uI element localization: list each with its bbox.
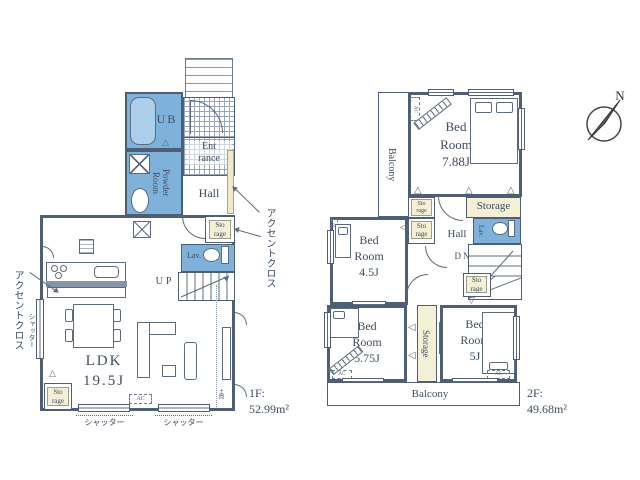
window <box>518 108 525 150</box>
fold-door-icon: △ <box>465 186 473 196</box>
casement-door-arc <box>234 384 247 397</box>
toilet-tank-1f <box>221 246 229 264</box>
hall-door-arc <box>425 246 447 268</box>
ub-label: UB <box>152 112 182 127</box>
pillow <box>475 102 492 113</box>
floor-partition-line <box>216 285 217 407</box>
fold-door-icon: △ <box>162 139 169 148</box>
toilet-tank-2f <box>508 220 515 237</box>
hall-2f-label: Hall <box>437 228 477 240</box>
accent-cloth-left-label: アクセントクロス <box>10 260 25 360</box>
fold-door-icon: ◁ <box>400 223 408 233</box>
chair <box>65 309 73 322</box>
sofa <box>162 365 176 377</box>
shutter-rail <box>76 415 133 416</box>
stairs-up-treads <box>179 273 234 300</box>
chair <box>113 329 121 342</box>
fold-door-icon: △ <box>414 186 422 196</box>
stove-burner <box>60 265 67 272</box>
window <box>324 312 331 348</box>
accent-cloth-right-label: アクセントクロス <box>262 198 277 298</box>
storage-small-1-label: Sto rage <box>411 199 432 216</box>
window <box>428 89 454 96</box>
floor2-label: 2F: <box>527 386 567 402</box>
fold-door-icon: ◁ <box>408 351 416 361</box>
window <box>513 316 520 360</box>
shutter-left-label: シャッター <box>27 298 37 362</box>
floorplan-canvas: Ent rance UB △ Powder Room Hall Sto rage… <box>0 0 640 480</box>
refrigerator <box>133 221 151 238</box>
kitchen-cabinet <box>79 239 94 254</box>
tv-board <box>222 327 231 380</box>
fold-door-icon: ◁ <box>408 323 416 333</box>
storage-mid-label: Sto rage <box>209 220 231 239</box>
storage-small-3-label: Sto rage <box>466 276 487 293</box>
stairs-up <box>178 272 235 301</box>
front-door-leaf <box>190 100 191 134</box>
window <box>78 404 130 412</box>
pillow <box>333 311 345 319</box>
chair <box>65 329 73 342</box>
casement-door-arc <box>234 312 247 325</box>
floor2-area: 2F: 49.68m² <box>527 386 567 417</box>
washing-machine <box>129 154 150 174</box>
entrance-steps <box>185 58 233 98</box>
kitchen-sink <box>94 266 119 278</box>
floor1-area: 1F: 52.99m² <box>249 386 289 417</box>
entrance-label: Ent rance <box>186 141 232 165</box>
callout-line <box>236 229 261 237</box>
balcony-bottom-label: Balcony <box>397 388 463 400</box>
shutter-label: シャッター <box>155 417 212 428</box>
compass: N <box>578 88 634 148</box>
window <box>468 89 514 96</box>
balcony-left-label: Balcony <box>386 128 397 202</box>
pillow <box>338 227 348 235</box>
window <box>36 299 44 359</box>
lav-2f-label: Lav. <box>477 220 485 242</box>
storage-bottom-label: Sto rage <box>47 387 69 406</box>
floor1-area-value: 52.99m² <box>249 402 289 418</box>
toilet-bowl-2f <box>492 222 508 235</box>
shutter-label: シャッター <box>76 417 133 428</box>
pillow <box>489 362 508 370</box>
up-label: UP <box>152 276 178 287</box>
toilet-bowl-1f <box>203 248 220 262</box>
powder-label: Powder Room <box>151 153 171 213</box>
storage-small-2-label: Sto rage <box>411 221 432 239</box>
powder-sink <box>131 188 149 213</box>
shutter-rail <box>155 415 212 416</box>
fold-door-icon: △ <box>49 370 56 379</box>
bedroom-door-arc <box>406 274 428 296</box>
stove-burner <box>51 265 58 272</box>
storage-vertical-label: Storage <box>421 318 431 370</box>
window <box>158 404 210 412</box>
stove-burner <box>55 272 62 279</box>
chair <box>113 309 121 322</box>
sofa <box>149 322 176 335</box>
lav-1f-label: Lav. <box>184 251 204 260</box>
ac-unit-1f: AC <box>129 394 152 404</box>
storage-main-label: Storage <box>466 200 521 212</box>
callout-line <box>233 187 260 213</box>
side-table <box>184 342 197 380</box>
floor2-area-value: 49.68m² <box>527 402 567 418</box>
doma-label: 土間 <box>218 386 225 402</box>
fold-door-icon: △ <box>507 186 515 196</box>
pillow <box>496 102 513 113</box>
bedroom-door-arc <box>438 196 463 221</box>
compass-north-label: N <box>612 88 628 104</box>
hall-1f-label: Hall <box>186 186 232 201</box>
window <box>327 230 334 264</box>
floor1-label: 1F: <box>249 386 289 402</box>
dining-table <box>73 304 114 348</box>
